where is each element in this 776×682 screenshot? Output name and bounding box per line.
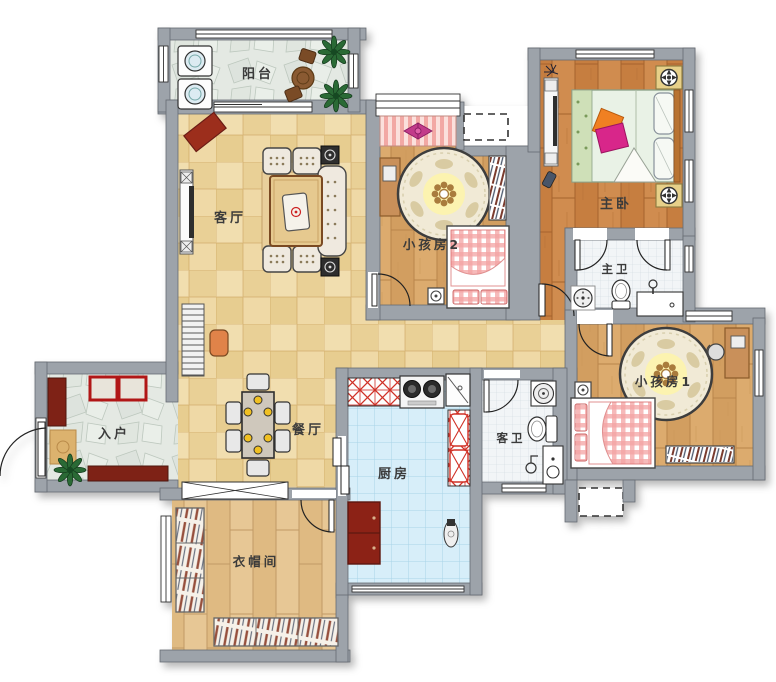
floorplan-canvas: 阳台 客厅 小孩房2 主卧 主卫 小孩房1 客卫 厨房 餐厅 入户 衣帽间 [0,0,776,682]
pillow [575,434,587,461]
entry-door [0,418,46,478]
bookshelf [489,156,506,220]
label-kids2: 小孩房2 [402,237,461,252]
stool-icon [575,382,591,398]
master-bath-window [685,246,693,272]
stool-icon [428,288,444,304]
label-cloakroom: 衣帽间 [233,554,280,569]
pillow [575,404,587,431]
wall-entry-bottom [35,480,178,492]
floorplan-svg: 阳台 客厅 小孩房2 主卧 主卫 小孩房1 客卫 厨房 餐厅 入户 衣帽间 [0,0,776,682]
dining-chair [226,402,241,424]
wall-cloakroom-bottom [160,650,350,662]
kids2-bay-window [376,94,460,116]
wall-entry-top [35,362,178,374]
ac-unit-1 [464,114,508,140]
armchair [263,148,291,174]
wall-master-left [528,48,540,152]
window-seat [380,116,456,146]
kids1-top-window [686,311,732,321]
wall-master-right [683,48,695,240]
lamp-icon [661,188,677,204]
wall-kitchen-right [470,368,482,595]
radiator [182,304,204,376]
balcony-sliding-door [214,102,312,112]
label-balcony: 阳台 [242,66,274,82]
kitchen-sink [446,374,470,406]
bathroom-sink [543,446,563,484]
kitchen-cabinet-red [348,502,380,564]
entry-shoe-bench [88,466,168,481]
hallway-floor [372,320,577,368]
label-master: 主卧 [600,196,632,212]
side-table [321,146,339,164]
kitchen-counter-top [348,378,400,406]
label-guest-bath: 客卫 [496,431,526,445]
bookshelf [666,446,734,463]
label-living: 客厅 [214,210,246,226]
dining-chair [247,460,269,476]
pillow [453,290,479,304]
ac-platform-wall [565,480,577,522]
armchair [293,148,321,174]
plant-icon [54,454,86,486]
guest-bath-window [502,484,546,492]
tv-cabinet [180,170,194,254]
lamp-icon [661,70,677,86]
wardrobe-bottom [214,618,338,646]
wardrobe-left [176,508,204,612]
kids1-right-window [755,350,763,396]
armchair [293,246,321,272]
balcony-top-window [196,30,332,38]
master-top-window [576,50,654,58]
closet-box [182,482,288,499]
sofa-set [262,146,346,276]
dining-chair [275,402,290,424]
wall-kids2-right [506,146,540,320]
plant-icon [320,80,352,112]
coffee-table [270,176,322,246]
ac-platform-wall-2 [623,480,635,502]
washing-machine [178,79,212,109]
wall-kids1-right [753,318,765,480]
label-kitchen: 厨房 [378,466,410,482]
armchair [263,246,291,272]
kids1-bed [571,398,655,468]
dining-chair [226,430,241,452]
label-dining: 餐厅 [291,422,324,438]
label-entry: 入户 [98,426,130,442]
nightstand [656,184,682,207]
floorplan: 阳台 客厅 小孩房2 主卧 主卫 小孩房1 客卫 厨房 餐厅 入户 衣帽间 [0,28,765,662]
headboard [674,90,680,182]
shower-drain [571,286,595,310]
stove [400,376,444,408]
entry-cabinet [48,378,66,426]
side-table [321,258,339,276]
toilet [612,280,630,309]
label-master-bath: 主卫 [602,262,631,276]
dining-chair [275,430,290,452]
plant-icon [318,36,350,68]
wall-living-left [166,100,178,402]
desk-chair [708,344,724,360]
balcony-right-window [349,54,358,88]
tv-icon [553,96,557,146]
master-bed [572,90,680,182]
ac-unit-2 [579,488,623,516]
kitchen-counter-right [448,410,470,486]
dining-chair [247,374,269,390]
washing-machine [178,46,212,76]
washing-machine [531,381,556,406]
cloakroom-left-window [161,516,171,602]
entry-bench [90,377,146,400]
toilet [528,416,557,442]
pillow [481,290,507,304]
label-kids1: 小孩房1 [634,374,693,389]
nightstand [656,66,682,89]
kitchen-window [352,586,464,592]
tv-icon [189,186,194,238]
ottoman [210,330,228,356]
balcony-left-window [159,46,168,82]
